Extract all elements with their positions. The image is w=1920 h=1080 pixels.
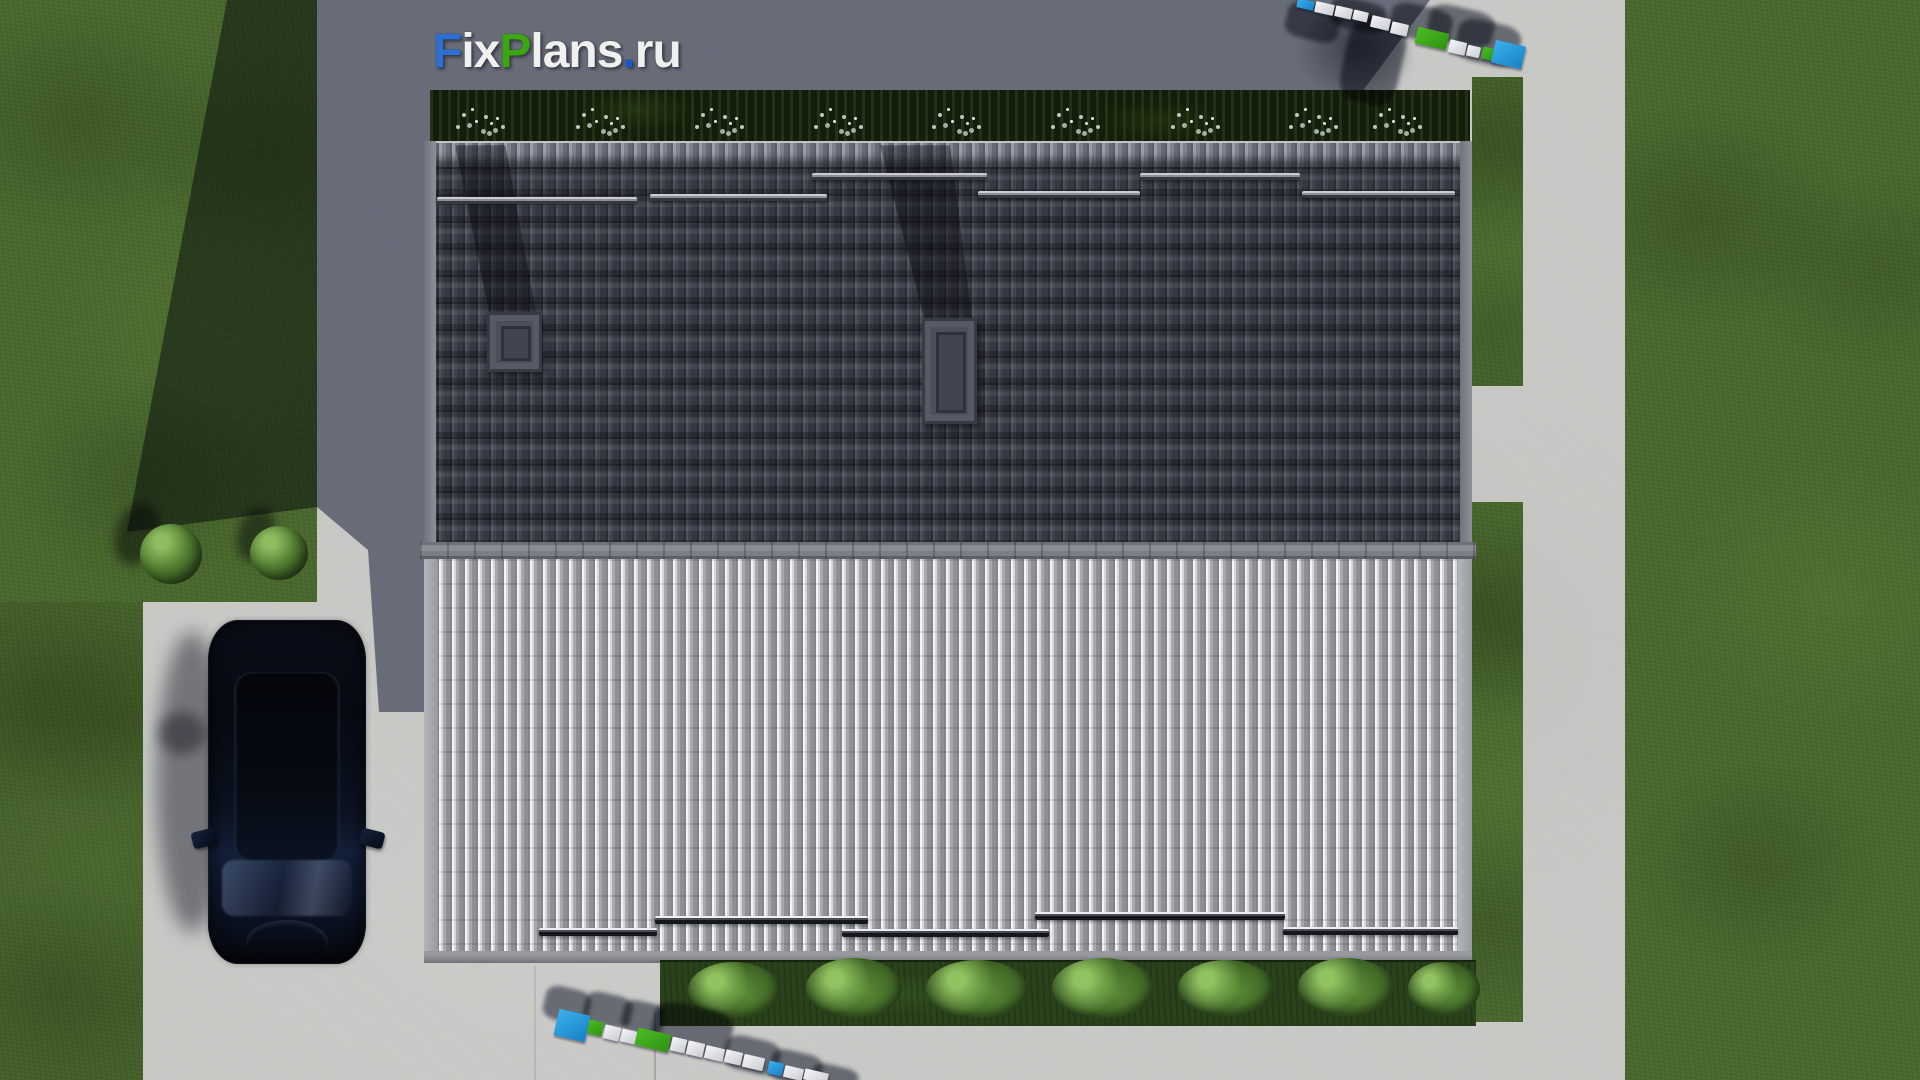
flower <box>966 122 969 125</box>
flower <box>607 131 612 136</box>
chimney-flue <box>936 332 966 413</box>
shrub-left-1 <box>140 524 202 584</box>
flower <box>1418 125 1422 129</box>
flower <box>720 129 725 134</box>
flower <box>582 113 586 117</box>
flower <box>1182 123 1187 128</box>
flower <box>462 113 466 117</box>
flower <box>467 123 472 128</box>
pavement-seam-driveway <box>534 966 536 1080</box>
flower <box>735 117 738 120</box>
flower <box>1326 128 1331 133</box>
flower <box>960 115 964 119</box>
watermark-letter-slab <box>587 1019 605 1036</box>
lawn-left-bottom <box>0 602 143 1080</box>
flower <box>1205 122 1208 125</box>
lawn-strip-east-lower <box>1472 502 1523 1022</box>
flower <box>1211 117 1214 120</box>
flower <box>1373 125 1377 129</box>
flower <box>587 123 592 128</box>
roof-fascia-left-dark <box>424 141 436 543</box>
flower <box>848 122 851 125</box>
flower <box>484 115 488 119</box>
chimney-flue <box>501 326 531 361</box>
flower <box>456 125 460 129</box>
flower <box>854 117 857 120</box>
flower <box>501 125 505 129</box>
flower <box>1300 123 1305 128</box>
flower <box>1208 128 1213 133</box>
flower <box>1070 120 1073 123</box>
flower <box>1088 128 1093 133</box>
logo-segment-1: ix <box>461 25 499 78</box>
watermark-letter-slab <box>670 1036 688 1053</box>
flower <box>1317 115 1321 119</box>
snow-guard-bar <box>655 916 868 924</box>
south-bush <box>1298 958 1394 1016</box>
flower <box>729 122 732 125</box>
watermark-letter-slab <box>553 1009 590 1043</box>
flower <box>613 128 618 133</box>
flower <box>723 115 727 119</box>
flower <box>1295 113 1299 117</box>
flower <box>706 123 711 128</box>
flower <box>1329 117 1332 120</box>
flower <box>726 131 731 136</box>
snow-guard-bar <box>1283 927 1458 935</box>
car-roof-glass <box>234 672 340 862</box>
south-bush <box>1052 958 1154 1018</box>
south-bush <box>1178 960 1274 1016</box>
flower <box>1079 115 1083 119</box>
flower <box>842 115 846 119</box>
flower <box>825 123 830 128</box>
flower <box>701 113 705 117</box>
flower <box>1062 123 1067 128</box>
flower <box>972 117 975 120</box>
snow-guard-bar <box>1035 912 1285 920</box>
chimney-2 <box>922 318 977 424</box>
flower <box>1289 125 1293 129</box>
flower <box>1057 113 1061 117</box>
lawn-right-field <box>1625 0 1920 1080</box>
flower <box>1413 117 1416 120</box>
north-hedge <box>430 90 1470 144</box>
shrub-left-2 <box>250 526 308 580</box>
flower <box>977 125 981 129</box>
flower <box>1096 125 1100 129</box>
flower <box>969 128 974 133</box>
lawn-strip-east-upper <box>1472 77 1523 386</box>
flower <box>616 117 619 120</box>
flower <box>947 108 950 111</box>
flower <box>1171 125 1175 129</box>
flower <box>496 117 499 120</box>
car-mirror-shadow <box>158 712 206 754</box>
flower <box>1384 123 1389 128</box>
flower <box>1323 122 1326 125</box>
flower <box>1320 131 1325 136</box>
roof-ridge <box>420 542 1476 559</box>
watermark-letter-slab <box>704 1045 725 1062</box>
flower <box>829 108 832 111</box>
car-hood <box>246 920 328 964</box>
flower <box>591 108 594 111</box>
snow-guard-bar <box>650 194 827 201</box>
flower <box>471 108 474 111</box>
flower <box>851 128 856 133</box>
flower <box>1196 129 1201 134</box>
flower <box>1308 120 1311 123</box>
flower <box>957 129 962 134</box>
flower <box>1202 131 1207 136</box>
flower <box>963 131 968 136</box>
roof-south-slope <box>424 559 1472 951</box>
flower <box>1392 120 1395 123</box>
flower <box>938 113 942 117</box>
flower <box>1334 125 1338 129</box>
flower <box>1388 108 1391 111</box>
logo-segment-0: F <box>433 25 461 78</box>
flower <box>714 120 717 123</box>
site-logo: FixPlans.ru <box>433 28 681 76</box>
flower <box>845 131 850 136</box>
car-windshield-reflection <box>222 860 352 916</box>
flower <box>1066 108 1069 111</box>
snow-guard-bar <box>1302 191 1455 198</box>
flower <box>595 120 598 123</box>
watermark-letter-slab <box>686 1040 706 1057</box>
flower <box>1401 115 1405 119</box>
flower <box>487 131 492 136</box>
flower <box>695 125 699 129</box>
flower <box>490 122 493 125</box>
flower <box>1085 122 1088 125</box>
flower <box>814 125 818 129</box>
snow-guard-bar <box>842 929 1049 937</box>
watermark-letter-slab <box>1448 39 1467 55</box>
flower <box>1404 131 1409 136</box>
flower <box>839 129 844 134</box>
flower <box>1314 129 1319 134</box>
render-stage: FixPlans.ru <box>0 0 1920 1080</box>
logo-segment-4: . <box>622 25 634 78</box>
flower <box>604 115 608 119</box>
flower <box>475 120 478 123</box>
flower <box>820 113 824 117</box>
snow-guard-bar <box>539 928 657 936</box>
flower <box>1304 108 1307 111</box>
flower <box>493 128 498 133</box>
roof-fascia-left-light <box>424 559 438 951</box>
snow-guard-bar <box>812 173 987 180</box>
roof-fascia-right-light <box>1458 559 1472 951</box>
suv-car <box>208 620 366 964</box>
flower <box>576 125 580 129</box>
flower <box>859 125 863 129</box>
flower <box>943 123 948 128</box>
snow-guard-bar <box>437 197 637 204</box>
flower <box>932 125 936 129</box>
south-bush <box>806 958 902 1018</box>
roof-fascia-right-dark <box>1460 141 1472 543</box>
flower <box>1407 122 1410 125</box>
flower <box>1076 129 1081 134</box>
flower <box>621 125 625 129</box>
flower <box>1177 113 1181 117</box>
logo-segment-2: P <box>499 25 530 78</box>
flower <box>1216 125 1220 129</box>
flower <box>1091 117 1094 120</box>
flower <box>1410 128 1415 133</box>
flower <box>1199 115 1203 119</box>
south-bush <box>1408 962 1480 1016</box>
logo-segment-3: lans <box>530 25 622 78</box>
logo-segment-5: ru <box>635 25 681 78</box>
flower <box>951 120 954 123</box>
watermark-letter-slab <box>603 1024 622 1041</box>
chimney-1 <box>487 312 542 372</box>
south-bush <box>926 960 1028 1018</box>
flower <box>1190 120 1193 123</box>
flower <box>710 108 713 111</box>
flower <box>833 120 836 123</box>
flower <box>481 129 486 134</box>
flower <box>732 128 737 133</box>
flower <box>601 129 606 134</box>
flower <box>1398 129 1403 134</box>
flower <box>1082 131 1087 136</box>
snow-guard-bar <box>978 191 1140 198</box>
flower <box>740 125 744 129</box>
flower <box>1051 125 1055 129</box>
flower <box>610 122 613 125</box>
flower <box>1186 108 1189 111</box>
flower <box>1379 113 1383 117</box>
snow-guard-bar <box>1140 173 1300 180</box>
